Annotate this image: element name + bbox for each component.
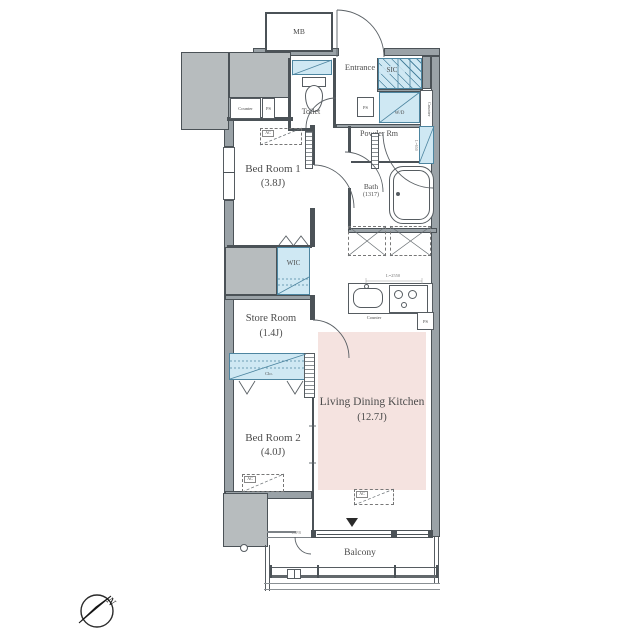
duct-strip-powder [371,133,379,169]
wic-label: WIC [277,259,310,267]
shaft-bottom-left [223,493,268,547]
railing-post-4 [436,565,438,578]
toilet-label: Toilet [288,107,334,116]
meter-box-label: MB [267,28,331,37]
ac-bedroom1-label: AC [262,130,274,137]
floor-plan: MB Counter PS Toilet Entrance SIC PS W/D… [0,0,640,639]
ps-entrance-label: PS [358,105,373,110]
ldk-label: Living Dining Kitchen [316,396,428,409]
balcony-top-left-line [267,537,311,538]
balcony-outer-edge [264,583,440,590]
powder-room-label: Powder Rm [352,129,406,138]
ps-box-top: PS [262,98,275,119]
bedroom2-size-label: (4.0J) [234,447,312,459]
mirror-cabinet [419,126,434,164]
fridge-space-1 [348,226,386,256]
washer-dryer-label: W/D [380,111,419,117]
window-mullion-right [428,530,433,538]
shaft-wic-left [225,247,277,295]
washer-dryer-box: W/D [379,92,420,123]
ps-box-entrance: PS [357,97,374,117]
counter-box-label: Counter [231,106,260,111]
wic-folding-door-mark [279,236,293,245]
mirror-length-label: L=650 [412,128,418,162]
clo-folding-door-mark [239,381,255,394]
wall-corridor-store [310,295,315,320]
wall-toilet-left [288,58,291,130]
kitchen-length-label: L=2550 [368,273,418,278]
balcony-drain-box [287,569,301,579]
stove-burner-right [408,290,417,299]
duct-strip-clo [304,353,315,398]
shaft-top-strip [229,52,291,98]
compass-needle [79,596,111,623]
clo-label: Clo. [258,371,280,376]
bedroom2-label: Bed Room 2 [234,432,312,445]
kitchen-counter-label: Counter [358,315,390,320]
railing-post-1 [270,565,272,578]
toilet-shelf [292,60,332,75]
compass-north-label: N [103,594,118,609]
kitchen-faucet [364,284,369,289]
wall-sic-right [422,56,431,89]
compass-icon: N [79,594,118,627]
bathtub-drain [396,192,400,196]
window-mullion-left [311,530,316,538]
railing-post-3 [394,565,396,578]
balcony-window-rail-1 [317,534,391,535]
clo-folding-door-mark2 [287,381,303,394]
window-mullion-mid [391,530,397,538]
ldk-floor-accent [318,332,426,490]
ps-kitchen-label: PS [418,319,433,324]
counter-vertical-label: Counter [421,93,432,126]
wall-store-top [225,295,312,300]
ps-box-label: PS [263,106,274,111]
balcony-window-rail-2 [395,534,429,535]
ldk-size-label: (12.7J) [316,412,428,424]
sliding-door-track [312,398,314,530]
ps-box-kitchen: PS [417,312,434,330]
wall-powder-left-upper [348,126,351,152]
wall-end-circle [240,544,248,552]
bath-size-label: (1317) [352,192,390,199]
stove-burner-small [401,302,407,308]
ac-bedroom2-label: AC [244,476,256,483]
balcony-partition-label: TBPB [283,531,309,536]
wall-bedroom1-right-lower [310,208,315,247]
meter-box: MB [265,12,333,52]
counter-box-top: Counter [230,98,261,119]
counter-box-vertical: Counter [420,90,433,127]
window-bedroom1-tick [223,172,235,173]
kitchen-sink [353,288,383,308]
ac-box-bedroom2: AC [242,474,284,492]
entry-direction-marker [346,518,358,527]
shaft-top-left [181,52,229,130]
bath-label: Bath [352,183,390,192]
sic-label: SIC [379,66,405,74]
wall-top-right [384,48,440,56]
stove-burner-left [394,290,403,299]
ac-box-bedroom1: AC [260,128,302,145]
balcony-window [311,530,433,538]
kitchen-stove [389,285,428,313]
entrance-door-arc [337,10,384,57]
wall-powder-left-lower [348,188,351,230]
balcony-partition-arc [295,537,311,554]
bedroom1-label: Bed Room 1 [234,163,312,176]
balcony-label: Balcony [325,548,395,559]
fridge-space-2 [390,226,431,256]
ac-box-ldk: AC [354,489,394,505]
entrance-label: Entrance [338,63,382,73]
wic-closet [277,247,310,295]
store-room-size-label: (1.4J) [235,328,307,340]
balcony-drain-box-line [294,570,295,578]
railing-post-2 [317,565,319,578]
wic-folding-door-mark2 [294,236,308,245]
wall-toilet-right [333,58,336,128]
store-room-label: Store Room [235,313,307,325]
bedroom1-size-label: (3.8J) [234,178,312,190]
clo-closet: Clo. [229,353,307,380]
ac-ldk-label: AC [356,491,368,498]
window-bedroom1 [223,147,235,200]
